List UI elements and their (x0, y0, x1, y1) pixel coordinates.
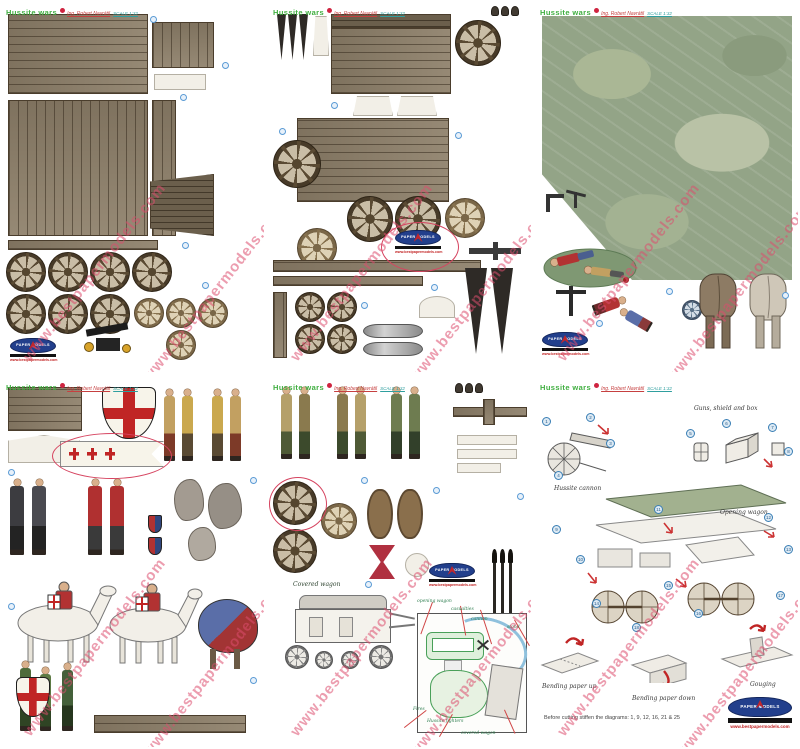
bullet-icon (60, 8, 65, 13)
caption-guns-shield-box: Guns, shield and box (694, 405, 758, 412)
callout-badge: 5 (686, 429, 695, 438)
bullet-icon (594, 383, 599, 388)
callout-badge: 3 (606, 439, 615, 448)
plan-green-blob (430, 670, 488, 718)
gunner-figure (228, 389, 243, 461)
red-cross-shield (102, 387, 156, 439)
wagon-wheel-tan (166, 330, 196, 360)
wagon-wheel (6, 252, 46, 292)
plan-label-cannon: cannon (471, 617, 488, 622)
helmet-part (511, 6, 519, 16)
wagon-door (339, 617, 353, 637)
part-number-badge (180, 94, 187, 101)
sheet-1-wagon-walls: Hussite warsIng. Robert NavrátilSCALE 1:… (2, 2, 264, 372)
soldier-figure (389, 387, 404, 459)
plan-label-stand: stand (507, 625, 520, 630)
sheet-2-wagon-parts: Hussite warsIng. Robert NavrátilSCALE 1:… (269, 2, 531, 372)
caption-gouging: Gouging (750, 681, 776, 688)
sheet-title: Hussite wars (273, 383, 324, 392)
gun-barrel-part (277, 14, 286, 60)
sheet-scale: SCALE 1:32 (647, 386, 672, 391)
sheet-header: Hussite warsIng. Robert NavrátilSCALE 1:… (273, 2, 405, 12)
logo-banner: PAPER MODELS (395, 230, 441, 245)
quartered-shield (148, 515, 162, 533)
wagon-wheel (455, 20, 501, 66)
part-number-badge (782, 292, 789, 299)
callout-badge: 10 (576, 555, 585, 564)
wagon-plank-strip (273, 276, 423, 286)
caption-bending-paper-up: Bending paper up (542, 683, 597, 690)
sheet-6-instructions: Hussite warsIng. Robert NavrátilSCALE 1:… (536, 377, 798, 747)
sheet-scale: SCALE 1:32 (113, 11, 138, 16)
paper-part (154, 74, 206, 90)
cross-beam-part (483, 399, 495, 425)
red-arrow (598, 425, 608, 434)
part-number-badge (596, 320, 603, 327)
wagon-plank-strip (8, 240, 158, 250)
publisher-logo: PAPER MODELS www.bestpapermodels.com (429, 563, 475, 587)
wagon-wheel (295, 324, 325, 354)
soldier-figure (279, 387, 294, 459)
sheet-header: Hussite warsIng. Robert NavrátilSCALE 1:… (540, 377, 672, 387)
red-group-ellipse (269, 477, 327, 531)
wagon-wheel-tan (134, 298, 164, 328)
wagon-wheel (341, 651, 359, 669)
plan-label-fires: Fires (413, 707, 425, 712)
logo-url: www.bestpapermodels.com (10, 358, 56, 362)
logo-strip (395, 246, 441, 249)
helmet-part (501, 6, 509, 16)
red-bend-arrow (750, 625, 765, 631)
wagon-plank-strip (273, 292, 287, 358)
part-number-badge (666, 288, 673, 295)
round-paper-part (405, 553, 429, 577)
caparisoned-horse (198, 599, 260, 671)
sheet-title: Hussite wars (540, 8, 591, 17)
plan-label-opening-wagon: opening wagon (417, 599, 452, 604)
callout-badge: 1 (542, 417, 551, 426)
part-number-badge (202, 282, 209, 289)
wagon-roof-piece (150, 174, 214, 236)
sheet-title: Hussite wars (6, 8, 57, 17)
logo-banner: PAPER MODELS (728, 697, 792, 717)
sheet-scale: SCALE 1:32 (380, 386, 405, 391)
pavise-shield (367, 489, 393, 539)
part-number-badge (361, 302, 368, 309)
tool-part (546, 198, 550, 212)
wagon-wheel (327, 324, 357, 354)
horse-leg (234, 649, 240, 669)
cannon-diagram (548, 433, 612, 475)
cannon-barrel (86, 322, 129, 336)
sheet-scale: SCALE 1:32 (113, 386, 138, 391)
soldier-figure (297, 387, 312, 459)
sheet-header: Hussite warsIng. Robert NavrátilSCALE 1:… (540, 2, 672, 12)
quartered-shield (148, 537, 162, 555)
hourglass-part (369, 545, 395, 579)
wagon-wheel-tan (198, 298, 228, 328)
paper-part (457, 435, 517, 445)
wagon-wheel (285, 645, 309, 669)
logo-strip (429, 579, 475, 582)
sheet-author: Ing. Robert Navrátil (67, 11, 110, 17)
box-diagram (694, 433, 784, 463)
horse-rear-figures (696, 270, 796, 354)
publisher-logo: PAPER MODELS www.bestpapermodels.com (395, 230, 441, 254)
part-number-badge (365, 581, 372, 588)
wagon-wheel (315, 651, 333, 669)
callout-badge: 16 (694, 609, 703, 618)
covered-wagon-diagram (281, 593, 409, 689)
horse-rear (700, 274, 736, 348)
callout-badge: 2 (586, 413, 595, 422)
wagon-wheel (369, 645, 393, 669)
wagon-wheel-tan (166, 298, 196, 328)
barrel-part (363, 342, 423, 356)
wagon-wheel (273, 140, 321, 188)
sheet-author: Ing. Robert Navrátil (67, 386, 110, 392)
paper-part (457, 449, 517, 459)
wagon-shaft (389, 612, 415, 619)
white-horse-with-knight (18, 582, 116, 662)
plan-label-hussite-fighters: Hussite fighters (427, 719, 464, 724)
logo-url: www.bestpapermodels.com (429, 583, 475, 587)
helmet-part (475, 383, 483, 393)
sheet-scale: SCALE 1:32 (647, 11, 672, 16)
wagon-plank-strip (94, 715, 246, 733)
sheet-3-battle-mat: Hussite warsIng. Robert NavrátilSCALE 1:… (536, 2, 798, 372)
sheet-title: Hussite wars (6, 383, 57, 392)
mounted-knights-group (6, 561, 206, 665)
horse-rear (750, 274, 786, 348)
instruction-footer-note: Before cutting stiffen the diagrams: 1, … (544, 715, 680, 721)
soldier-figure (353, 387, 368, 459)
cannon-wheel (122, 344, 131, 353)
knight-figure (108, 479, 126, 555)
part-number-badge (455, 132, 462, 139)
callout-badge: 7 (768, 423, 777, 432)
helmet-part (491, 6, 499, 16)
bullet-icon (327, 383, 332, 388)
part-number-badge (433, 487, 440, 494)
sheet-title: Hussite wars (540, 383, 591, 392)
horse-armor-piece (188, 527, 216, 561)
part-number-badge (8, 603, 15, 610)
wagon-roof-panel (331, 28, 451, 94)
cannon-carriage (96, 338, 120, 351)
leader-line (420, 602, 433, 634)
wagon-wheel (295, 292, 325, 322)
gun-barrel-part (288, 14, 297, 60)
crossbow-part (574, 192, 577, 208)
gunner-figure (210, 389, 225, 461)
sheet-4-figures: Hussite warsIng. Robert NavrátilSCALE 1:… (2, 377, 264, 747)
casualty-figures-group (542, 228, 654, 294)
callout-badge: 18 (632, 623, 641, 632)
logo-strip (542, 348, 588, 351)
horse-caparison (198, 599, 258, 653)
fallen-figure (617, 304, 654, 334)
crossbow-part (493, 242, 498, 260)
wagon-wheel (327, 292, 357, 322)
pavise-spike-part (491, 268, 513, 354)
logo-strip (728, 718, 792, 723)
wagon-wheel (132, 252, 172, 292)
sheet-author: Ing. Robert Navrátil (601, 386, 644, 392)
sheet-scale: SCALE 1:32 (380, 11, 405, 16)
gun-barrel-part (299, 14, 308, 60)
logo-strip (10, 354, 56, 357)
white-horse-with-knight (110, 584, 202, 663)
wagon-door (309, 617, 323, 637)
pavise-spike-part (465, 268, 487, 354)
sheet-5-wagon-and-plan: Hussite warsIng. Robert NavrátilSCALE 1:… (269, 377, 531, 747)
logo-banner: PAPER MODELS (542, 332, 588, 347)
part-number-badge (361, 477, 368, 484)
barrel-part (363, 324, 423, 338)
sheet-author: Ing. Robert Navrátil (334, 386, 377, 392)
paper-part (397, 96, 437, 116)
callout-badge: 8 (784, 447, 793, 456)
wagon-wheel (273, 529, 317, 573)
wagon-wall-panel (8, 14, 148, 94)
pavise-shield (397, 489, 423, 539)
bullet-icon (327, 8, 332, 13)
red-bend-arrow (566, 638, 583, 645)
part-number-badge (222, 62, 229, 69)
callout-badge: 17 (776, 591, 785, 600)
callout-badge: 13 (784, 545, 793, 554)
wagon-canopy (299, 595, 387, 609)
part-number-badge (517, 493, 524, 500)
caption-bending-paper-down: Bending paper down (632, 695, 695, 702)
opening-wagon-diagram (588, 485, 786, 623)
part-number-badge (250, 477, 257, 484)
bullet-icon (594, 8, 599, 13)
wagon-wall-panel (8, 100, 148, 236)
wagon-wall-panel (152, 22, 214, 68)
sheet-header: Hussite warsIng. Robert NavrátilSCALE 1:… (6, 377, 138, 387)
sheet-author: Ing. Robert Navrátil (601, 11, 644, 17)
publisher-logo: PAPER MODELS www.bestpapermodels.com (542, 332, 588, 356)
crossbow-part (569, 286, 573, 316)
plan-inner-area (432, 638, 474, 652)
publisher-logo: PAPER MODELS www.bestpapermodels.com (10, 338, 56, 362)
callout-badge: 4 (554, 471, 563, 480)
wagon-wheel (48, 252, 88, 292)
hussite-figure (60, 663, 75, 731)
wagon-wheel (90, 252, 130, 292)
paper-part (353, 96, 393, 116)
part-number-badge (279, 128, 286, 135)
horse-leg (210, 649, 216, 669)
horse-armor-piece (174, 479, 204, 521)
caption-hussite-cannon: Hussite cannon (554, 485, 601, 492)
covered-wagon-caption: Covered wagon (293, 581, 340, 588)
callout-badge: 15 (664, 581, 673, 590)
callout-badge: 11 (654, 505, 663, 514)
logo-url: www.bestpapermodels.com (728, 724, 792, 729)
helmet-part (465, 383, 473, 393)
diorama-plan (417, 613, 527, 733)
wagon-wheel (6, 294, 46, 334)
small-cannon-part (78, 318, 136, 356)
part-number-badge (182, 242, 189, 249)
cannon-wheel (84, 342, 94, 352)
sheet-header: Hussite warsIng. Robert NavrátilSCALE 1:… (6, 2, 138, 12)
logo-banner: PAPER MODELS (10, 338, 56, 353)
papercraft-collage-page: Hussite warsIng. Robert NavrátilSCALE 1:… (0, 0, 800, 749)
caption-opening-wagon: Opening wagon (720, 509, 768, 516)
gunner-figure (180, 389, 195, 461)
part-number-badge (331, 102, 338, 109)
wagon-shaft (389, 624, 415, 629)
sheet-header: Hussite warsIng. Robert NavrátilSCALE 1:… (273, 377, 405, 387)
callout-badge: 6 (722, 419, 731, 428)
plan-label-casualties: casualties (451, 607, 474, 612)
horse-armor-piece (208, 483, 242, 529)
helmet-part (455, 383, 463, 393)
plan-label-covered-wagon: covered wagon (461, 731, 496, 736)
soldier-figure (335, 387, 350, 459)
paper-part (457, 463, 501, 473)
paper-part (419, 296, 455, 318)
part-number-badge (431, 284, 438, 291)
sheet-author: Ing. Robert Navrátil (334, 11, 377, 17)
callout-badge: 14 (592, 599, 601, 608)
part-number-badge (150, 16, 157, 23)
soldier-figure (407, 387, 422, 459)
logo-url: www.bestpapermodels.com (542, 352, 588, 356)
blood-spot (623, 277, 629, 283)
cloaked-figure (30, 479, 48, 555)
paper-part (313, 16, 329, 56)
part-number-badge (250, 677, 257, 684)
callout-badge: 9 (552, 525, 561, 534)
part-number-badge (8, 469, 15, 476)
red-group-ellipse (52, 433, 172, 479)
instruction-line-art (536, 403, 798, 683)
red-arrow (764, 459, 772, 467)
leader-line (404, 710, 427, 728)
logo-url: www.bestpapermodels.com (395, 250, 441, 254)
leader-line (439, 714, 453, 737)
wagon-wall-panel (8, 387, 82, 431)
logo-banner: PAPER MODELS (429, 563, 475, 578)
sheet-title: Hussite wars (273, 8, 324, 17)
cloaked-figure (8, 479, 26, 555)
knight-figure (86, 479, 104, 555)
publisher-logo: PAPER MODELS www.bestpapermodels.com (728, 697, 792, 729)
